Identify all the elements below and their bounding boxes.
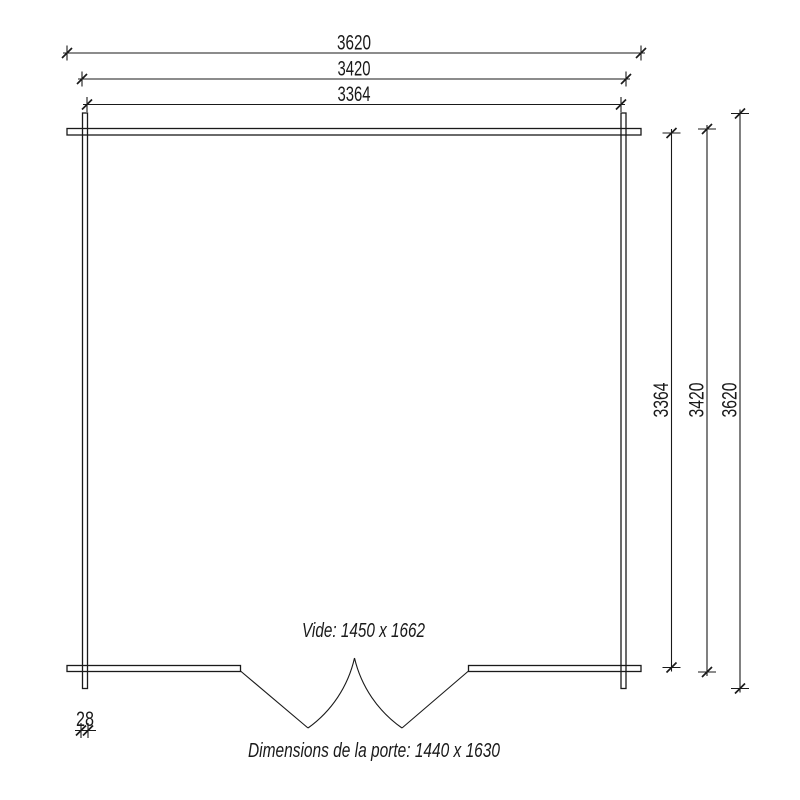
wall-right-post	[621, 113, 626, 689]
floor-plan-svg: 3620 3420 3364 3364 34	[0, 0, 800, 800]
door-size-annotation: Dimensions de la porte: 1440 x 1630	[248, 740, 500, 762]
wall-bottom-beam-left	[67, 666, 241, 672]
floor-plan: 3620 3420 3364 3364 34	[0, 0, 800, 800]
dimension-top-overall: 3620	[62, 32, 646, 61]
door	[241, 658, 469, 728]
door-swing-arc-left	[308, 658, 355, 728]
dimension-label-top-outer: 3420	[338, 58, 371, 81]
dimension-label-right-inner: 3364	[650, 382, 673, 417]
dimension-right-inner: 3364	[650, 128, 681, 673]
wall-thickness-label: 28	[76, 708, 94, 731]
wall-left-post	[83, 113, 88, 689]
dimension-label-right-overall: 3620	[719, 383, 742, 418]
dimension-label-top-overall: 3620	[337, 32, 371, 55]
dimensions-top: 3620 3420 3364	[62, 32, 646, 113]
door-leaf-right	[402, 671, 469, 728]
wall-thickness-dimension: 28	[75, 708, 96, 738]
dimension-right-outer: 3420	[686, 124, 717, 677]
dimension-label-top-inner: 3364	[338, 83, 371, 106]
dimension-top-inner: 3364	[82, 83, 626, 112]
wall-top-beam	[67, 129, 641, 136]
dimension-label-right-outer: 3420	[686, 383, 709, 418]
dimensions-right: 3364 3420 3620	[650, 109, 749, 694]
opening-size-annotation: Vide: 1450 x 1662	[302, 620, 425, 642]
wall-bottom-beam-right	[469, 666, 642, 672]
door-leaf-left	[241, 671, 309, 728]
dimension-right-overall: 3620	[719, 109, 750, 694]
door-swing-arc-right	[355, 658, 403, 728]
walls	[67, 113, 641, 689]
